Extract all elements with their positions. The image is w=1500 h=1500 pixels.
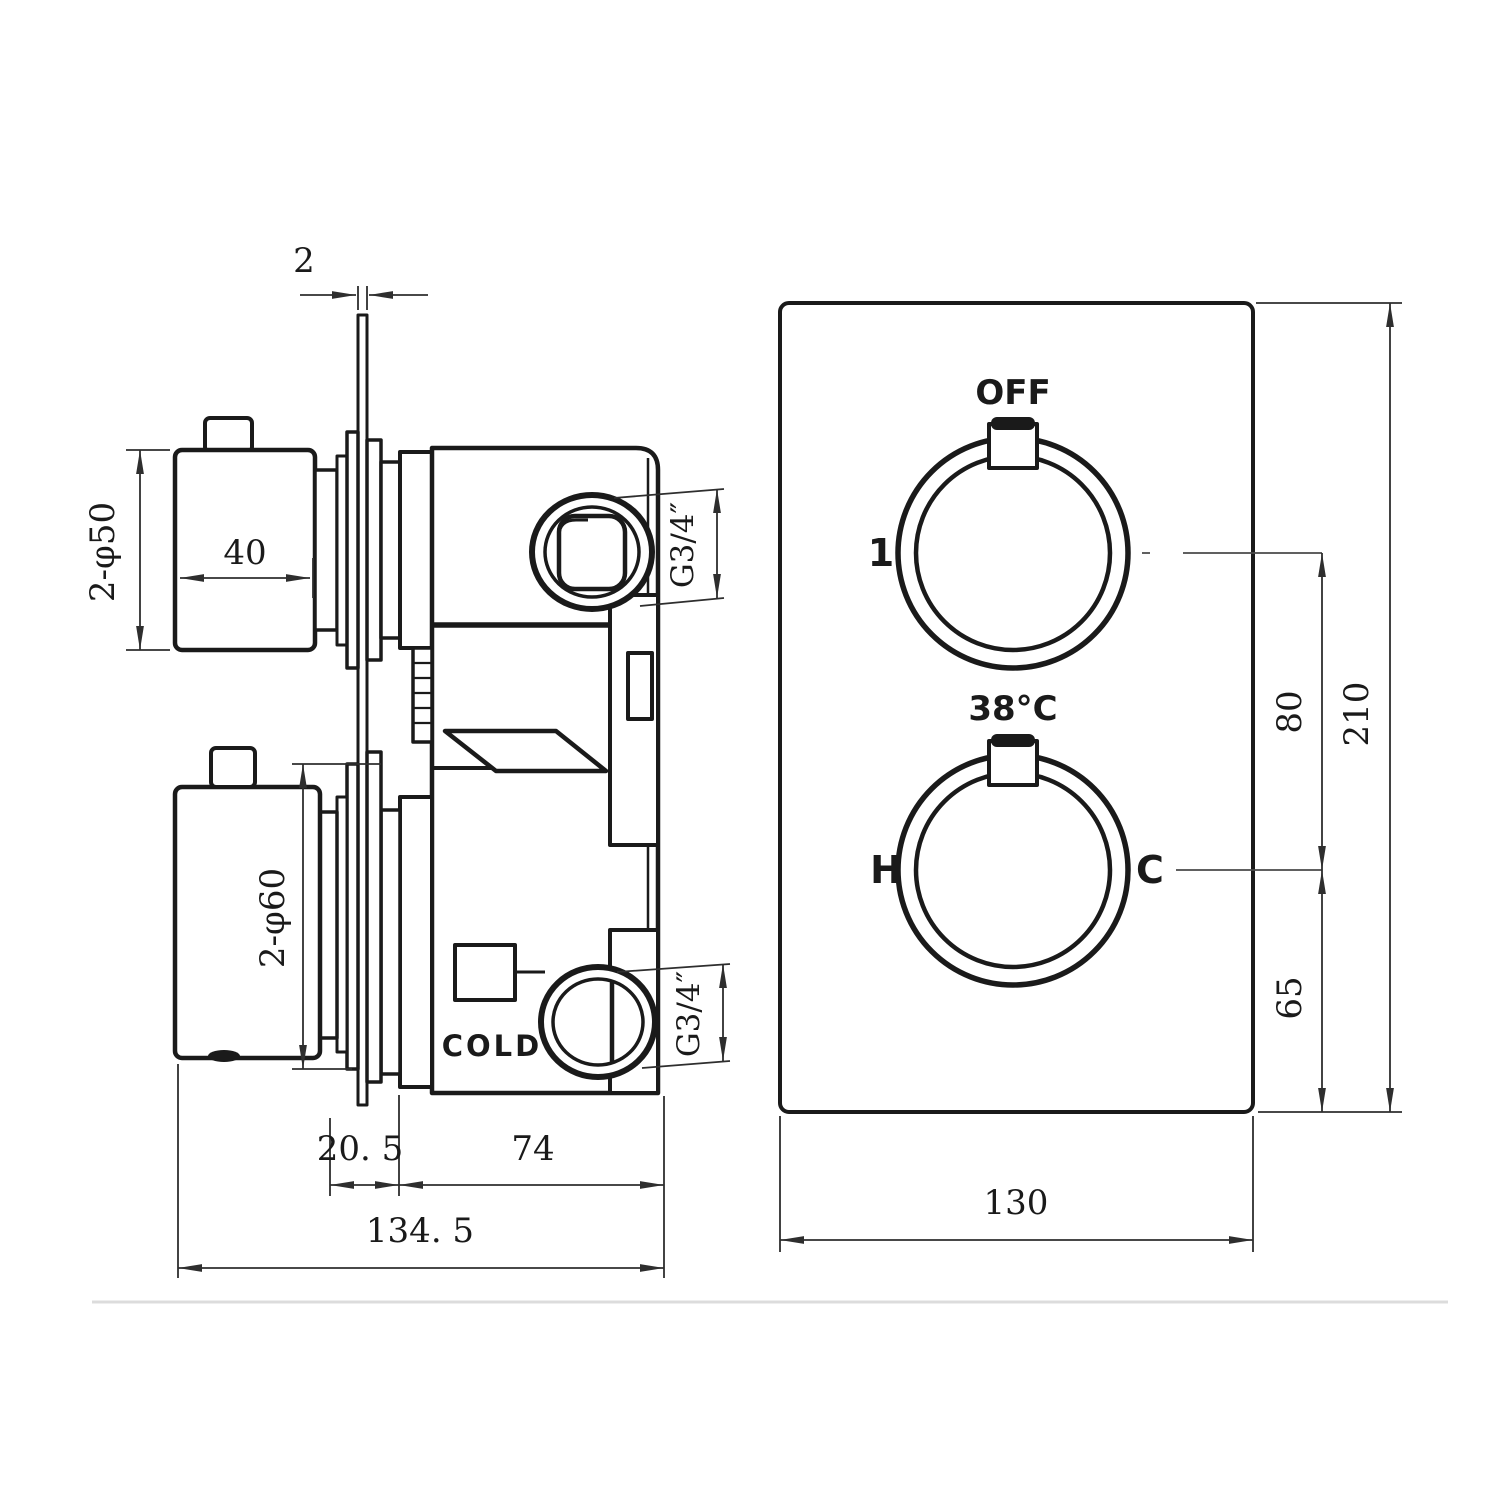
dim-label-outlet-thread: G3/4″ [665, 502, 701, 588]
dim-label-plate-to-body: 20. 5 [317, 1129, 404, 1169]
dim-knob-spacing: 80 [1270, 553, 1322, 870]
upper-handle-button [205, 418, 252, 452]
upper-handle-stem [315, 470, 337, 630]
dim-label-knob-spacing: 80 [1270, 690, 1310, 733]
dim-plate-width: 130 [780, 1116, 1253, 1252]
lower-flange-rear [367, 752, 381, 1082]
technical-drawing-page: 2 [0, 0, 1500, 1500]
front-view: OFF 1 38°C H C 80 65 [780, 303, 1402, 1252]
diverter-position-label: 1 [868, 531, 894, 575]
shower-valve-technical-drawing: 2 [0, 0, 1500, 1500]
temperature-knob-indicator-cap [991, 734, 1035, 747]
lower-spacer-inner [381, 810, 400, 1074]
side-view: 2 [83, 241, 730, 1278]
dim-label-plate-width: 130 [984, 1183, 1049, 1223]
upper-spacer-outer [400, 452, 432, 648]
inlet-block [455, 945, 515, 1000]
off-label: OFF [975, 373, 1050, 413]
valve-body: COLD [413, 448, 658, 1093]
cold-side-label: C [1136, 848, 1164, 892]
hot-label: H [870, 848, 902, 892]
threaded-connector-upper [413, 648, 432, 742]
upper-flange-rear [367, 440, 381, 660]
dim-label-plate-height: 210 [1337, 682, 1377, 747]
lower-handle-body [175, 787, 320, 1058]
upper-handle-side [175, 418, 432, 668]
temperature-knob-indicator [989, 741, 1037, 785]
dim-label-inlet-thread: G3/4″ [671, 971, 707, 1057]
cold-inlet-label: COLD [442, 1029, 543, 1063]
dim-upper-handle-diameter: 2-φ50 [83, 450, 170, 650]
dim-plate-to-body: 20. 5 [317, 1095, 404, 1196]
upper-flange [347, 432, 358, 668]
temperature-label: 38°C [968, 689, 1057, 729]
inlet-port-lower [541, 967, 655, 1077]
dim-label-upper-diameter: 2-φ50 [83, 502, 123, 602]
dim-label-overall-depth: 134. 5 [366, 1211, 474, 1251]
dim-label-bottom-offset: 65 [1270, 976, 1310, 1019]
dim-plate-thickness: 2 [293, 241, 428, 310]
diverter-knob-indicator [989, 424, 1037, 468]
outlet-port-upper [532, 495, 652, 609]
lower-handle-button [211, 748, 255, 787]
dim-label-plate-thickness: 2 [293, 241, 315, 281]
dim-bottom-offset: 65 [1258, 870, 1402, 1112]
diverter-knob-indicator-cap [991, 417, 1035, 430]
lower-handle-override-button [208, 1050, 240, 1062]
dim-overall-depth: 134. 5 [178, 1064, 664, 1278]
mounting-bracket-slot [628, 653, 652, 719]
dim-label-upper-length: 40 [223, 533, 266, 573]
lower-spacer-outer [400, 797, 432, 1087]
lower-flange [347, 764, 358, 1069]
dim-label-lower-diameter: 2-φ60 [253, 868, 293, 968]
dim-label-body-depth: 74 [511, 1129, 554, 1169]
upper-spacer-inner [381, 462, 400, 638]
